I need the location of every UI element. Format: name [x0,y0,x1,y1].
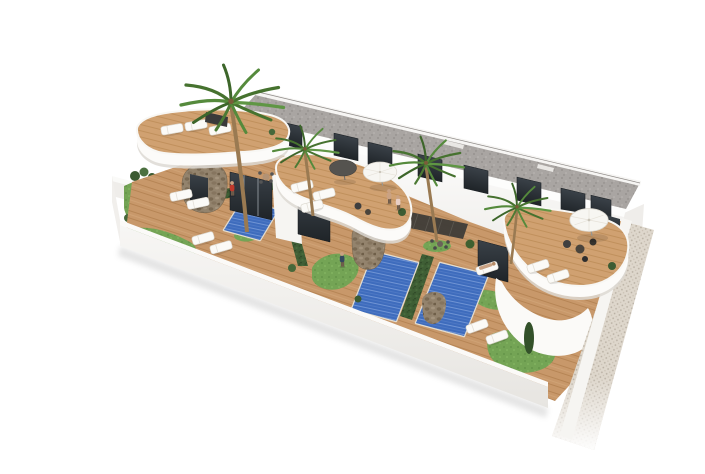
side-table [582,256,588,262]
scene-canvas: New-build townhouse complex: white curve… [40,16,705,458]
render-image: New-build townhouse complex: white curve… [40,16,705,458]
cypress-tree [524,322,534,354]
bush [355,296,362,303]
pouf-seat [563,240,571,248]
bush [466,240,475,249]
potted-plant [608,262,616,270]
pouf-seat [355,203,362,210]
bush [288,264,296,272]
potted-plant [269,129,275,135]
pouf-seat [365,209,371,215]
pouf-seat [576,245,585,254]
